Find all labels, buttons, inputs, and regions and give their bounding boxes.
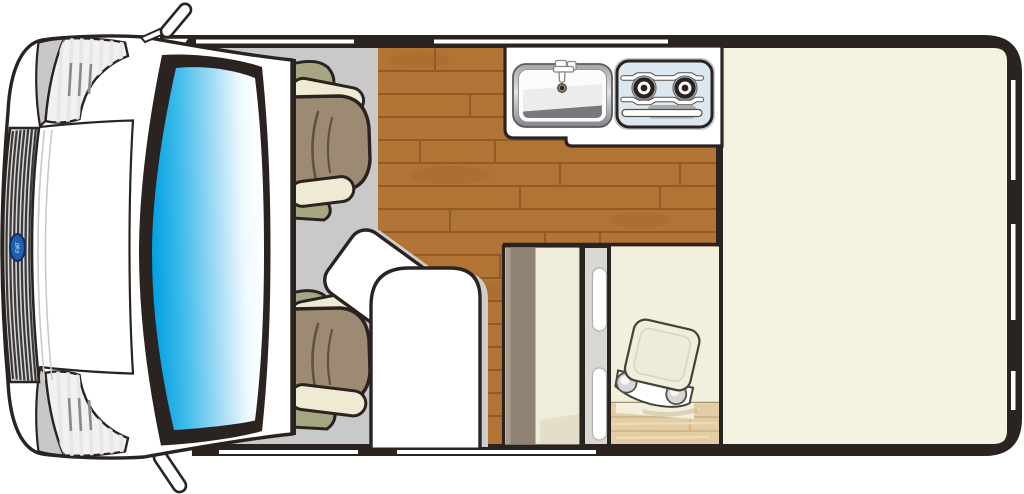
svg-text:FIAT: FIAT bbox=[15, 242, 21, 252]
